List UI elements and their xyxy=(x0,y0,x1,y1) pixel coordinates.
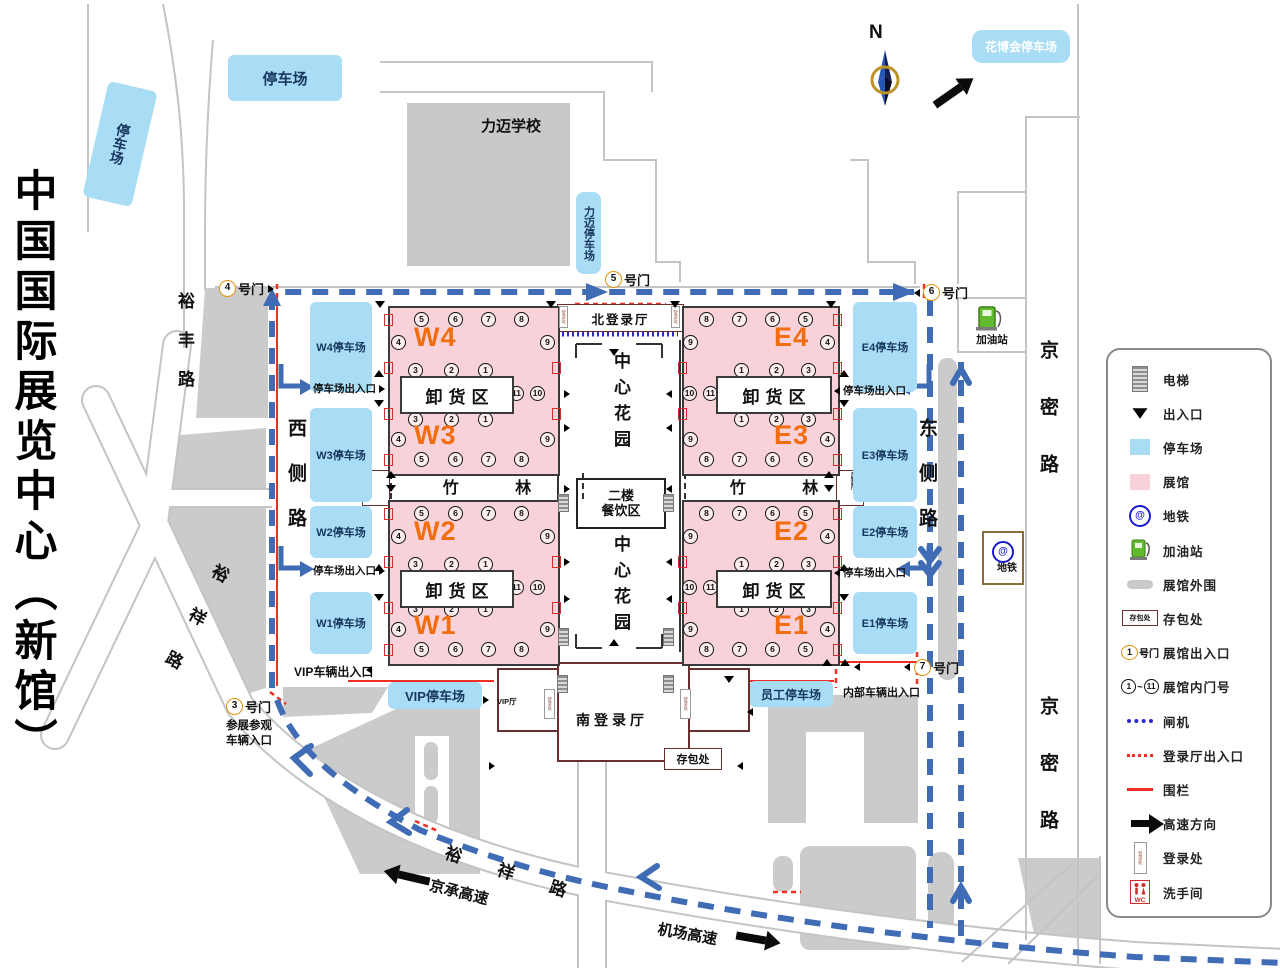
wc-icon xyxy=(384,314,393,326)
legend-item-perimeter: 展馆外围 xyxy=(1117,569,1263,599)
metro-icon: @ xyxy=(992,541,1014,563)
entrance-triangle-icon xyxy=(824,471,834,478)
direction-triangle-icon xyxy=(914,289,920,297)
svg-text:WC: WC xyxy=(1135,897,1146,904)
parking-E3停车场: E3停车场 xyxy=(853,408,917,502)
door-number: 10 xyxy=(682,386,697,401)
south-lobby-label: 南登录厅 xyxy=(576,710,648,730)
parking-entrance-text: 停车场出入口 xyxy=(843,565,906,580)
direction-triangle-icon xyxy=(564,595,570,603)
legend-item-turnstile: 闸机 xyxy=(1117,706,1263,736)
door-number: 4 xyxy=(391,622,406,637)
door-number: 7 xyxy=(481,506,496,521)
door-number: 7 xyxy=(481,642,496,657)
entrance-triangle-icon xyxy=(375,301,385,308)
entrance-triangle-icon xyxy=(374,370,384,377)
legend-item-metro: @地铁 xyxy=(1117,501,1263,531)
parking-limai: 力迈停车场 xyxy=(576,192,601,274)
parking-E2停车场: E2停车场 xyxy=(853,506,917,558)
legend-item-fence: 围栏 xyxy=(1117,774,1263,804)
bag-storage-label: 存包处 xyxy=(664,748,722,770)
direction-triangle-icon xyxy=(666,424,672,432)
wc-icon xyxy=(833,408,842,420)
gate-suffix: 号门 xyxy=(1139,645,1159,660)
parking-top: 停车场 xyxy=(228,55,342,101)
entrance-triangle-icon xyxy=(609,349,619,356)
door-number: 9 xyxy=(683,335,698,350)
legend-item-elevator: 电梯 xyxy=(1117,364,1263,394)
gate-number: 3 xyxy=(226,698,243,715)
registration-desk-icon: 登录处 xyxy=(544,689,555,719)
entrance-triangle-icon xyxy=(386,485,396,492)
entrance-triangle-icon xyxy=(839,594,849,601)
registration-desk-icon: 登录处 xyxy=(559,306,568,328)
parking-entrance-text: 停车场出入口 xyxy=(843,383,906,398)
door-number: 7 xyxy=(481,312,496,327)
entrance-triangle-icon xyxy=(840,659,850,666)
legend-item-label: 电梯 xyxy=(1163,370,1190,389)
door-number: 5 xyxy=(414,452,429,467)
gate-number: 6 xyxy=(923,284,940,301)
door-number: 4 xyxy=(391,529,406,544)
wc-icon xyxy=(833,508,842,520)
door-number: 8 xyxy=(699,312,714,327)
elevator-icon xyxy=(558,628,569,646)
parking-W2停车场: W2停车场 xyxy=(310,506,372,558)
door-number: 6 xyxy=(765,452,780,467)
unloading-dock: 卸货区 xyxy=(400,570,514,608)
north-lobby: 北登录厅 xyxy=(557,304,684,332)
door-number: 7 xyxy=(732,312,747,327)
legend-item-label: 停车场 xyxy=(1163,438,1204,457)
wc-icon xyxy=(384,602,393,614)
road-jingmi-top: 京密路 xyxy=(1034,340,1061,511)
entrance-triangle-icon xyxy=(839,370,849,377)
parking-W1停车场: W1停车场 xyxy=(310,592,372,654)
hall-label-E3: E3 xyxy=(774,422,809,449)
door-number: 8 xyxy=(699,452,714,467)
legend-item-label: 围栏 xyxy=(1163,780,1190,799)
wc-icon xyxy=(384,408,393,420)
parking-E4停车场: E4停车场 xyxy=(853,302,917,392)
metro-station: @ 地铁 xyxy=(982,531,1024,585)
gate-suffix: 号门 xyxy=(624,270,650,289)
direction-triangle-icon xyxy=(489,762,495,770)
wc-icon xyxy=(833,602,842,614)
legend-item-triangle: 出入口 xyxy=(1117,398,1263,428)
gate-suffix: 号门 xyxy=(245,697,271,716)
turnstile-line-icon xyxy=(1127,719,1153,723)
entrance-triangle-icon xyxy=(824,485,834,492)
parking-staff: 员工停车场 xyxy=(749,681,833,707)
direction-triangle-icon xyxy=(483,696,489,704)
wc-icon xyxy=(552,408,561,420)
legend-item-bag: 存包处存包处 xyxy=(1117,603,1263,633)
direction-triangle-icon xyxy=(564,424,570,432)
legend-item-label: 展馆 xyxy=(1163,472,1190,491)
direction-triangle-icon xyxy=(268,285,274,293)
door-number: 8 xyxy=(514,506,529,521)
entrance-triangle-icon xyxy=(386,471,396,478)
door-number: 10 xyxy=(530,386,545,401)
door-number: 4 xyxy=(820,529,835,544)
lobby-door-line-icon xyxy=(1127,754,1153,757)
gate-7-label: 7号门 xyxy=(914,658,959,677)
door-number: 9 xyxy=(683,622,698,637)
registration-desk-text: 登录处 xyxy=(561,310,566,324)
bamboo-strip-east: 竹 林 xyxy=(684,473,864,499)
unloading-dock: 卸货区 xyxy=(716,570,832,608)
wc-icon xyxy=(678,602,687,614)
legend-item-label: 高速方向 xyxy=(1163,814,1217,833)
wc-icon xyxy=(384,556,393,568)
parking-swatch xyxy=(1130,439,1150,455)
legend-item-label: 展馆出入口 xyxy=(1163,643,1231,662)
unloading-dock: 卸货区 xyxy=(716,376,832,414)
entrance-triangle-icon xyxy=(670,301,680,308)
wc-icon xyxy=(552,362,561,374)
perimeter-swatch xyxy=(1127,580,1153,589)
fence-line-icon xyxy=(1127,788,1153,791)
parking-far-left-label: 停车场 xyxy=(106,121,135,166)
parking-E1停车场: E1停车场 xyxy=(853,592,917,654)
elevator-icon xyxy=(1132,366,1148,392)
wc-icon xyxy=(384,644,393,656)
wc-icon xyxy=(833,454,842,466)
wc-icon xyxy=(384,362,393,374)
direction-triangle-icon xyxy=(747,708,753,716)
door-number: 10 xyxy=(682,580,697,595)
door-number: 7 xyxy=(732,642,747,657)
venue-map: 中国国际展览中心（新馆） N 停车场 停车场 力迈学校 力迈停车场 花博会停车场… xyxy=(0,0,1280,968)
direction-triangle-icon xyxy=(666,558,672,566)
wc-icon: WC xyxy=(1130,880,1150,904)
central-garden-north-label: 中心花园 xyxy=(608,352,633,456)
south-lobby-east-wing xyxy=(686,668,750,732)
door-number: 9 xyxy=(540,432,555,447)
entrance-triangle-icon xyxy=(822,659,832,666)
gate-5-label: 5号门 xyxy=(605,270,650,289)
wc-icon xyxy=(552,602,561,614)
internal-vehicle-entrance-label: 内部车辆出入口 xyxy=(843,684,920,700)
legend-item-label: 登录处 xyxy=(1163,848,1204,867)
elevator-icon xyxy=(663,494,674,512)
door-number: 7 xyxy=(732,452,747,467)
legend-item-regdesk: 登录处登录处 xyxy=(1117,843,1263,873)
direction-triangle-icon xyxy=(737,762,743,770)
door-number: 1 xyxy=(1121,679,1136,694)
dining-line1: 二楼 xyxy=(608,489,634,504)
direction-triangle-icon xyxy=(564,558,570,566)
gate-number: 5 xyxy=(605,271,622,288)
parking-vip: VIP停车场 xyxy=(388,682,482,709)
hall-label-W1: W1 xyxy=(414,612,457,639)
road-jingmi-bottom: 京密路 xyxy=(1034,696,1061,867)
direction-triangle-icon xyxy=(379,385,385,393)
legend-panel: 电梯出入口停车场展馆@地铁加油站展馆外围存包处存包处1号门展馆出入口1~11展馆… xyxy=(1106,348,1272,918)
door-number: 1 xyxy=(734,412,749,427)
bag-storage-icon: 存包处 xyxy=(1122,610,1158,626)
legend-item-label: 加油站 xyxy=(1163,541,1204,560)
gate-number: 4 xyxy=(219,280,236,297)
gas-station-label: 加油站 xyxy=(961,332,1023,347)
road-xice: 西侧路 xyxy=(282,418,309,553)
door-number: 9 xyxy=(540,335,555,350)
hall-swatch xyxy=(1130,474,1150,490)
entrance-triangle-icon xyxy=(374,400,384,407)
door-number: 9 xyxy=(540,622,555,637)
road-dongce: 东侧路 xyxy=(913,418,940,553)
legend-item-label: 地铁 xyxy=(1163,506,1190,525)
parking-limai-label: 力迈停车场 xyxy=(581,206,597,261)
legend-item-gas: 加油站 xyxy=(1117,535,1263,565)
parking-W3停车场: W3停车场 xyxy=(310,408,372,502)
parking-entrance-text: 停车场出入口 xyxy=(313,563,376,578)
gate-4-label: 4号门 xyxy=(219,279,264,298)
elevator-icon xyxy=(558,494,569,512)
door-number: 4 xyxy=(820,622,835,637)
door-number: 8 xyxy=(514,312,529,327)
hall-label-E2: E2 xyxy=(774,518,809,545)
gate-number: 1 xyxy=(1121,645,1138,660)
door-number: 9 xyxy=(540,529,555,544)
door-number: 7 xyxy=(732,506,747,521)
door-number: 4 xyxy=(391,432,406,447)
limai-school-label: 力迈学校 xyxy=(455,115,567,136)
wc-icon xyxy=(678,408,687,420)
parking-entrance-label: 停车场出入口 xyxy=(313,563,385,578)
door-range-icon: 1~11 xyxy=(1121,679,1158,694)
gate-6-label: 6号门 xyxy=(923,283,968,302)
registration-desk-text: 登录处 xyxy=(683,697,688,711)
gate-suffix: 号门 xyxy=(238,279,264,298)
door-number: 9 xyxy=(683,529,698,544)
registration-desk-text: 登录处 xyxy=(547,697,552,711)
entrance-triangle-icon xyxy=(1133,408,1148,419)
hall-label-W3: W3 xyxy=(414,422,457,449)
page-title: 中国国际展览中心（新馆） xyxy=(10,168,53,768)
parking-W4停车场: W4停车场 xyxy=(310,302,372,392)
metro-label: 地铁 xyxy=(997,564,1009,575)
wc-icon xyxy=(678,556,687,568)
legend-item-highway: 高速方向 xyxy=(1117,809,1263,839)
direction-triangle-icon xyxy=(366,666,372,674)
road-yufeng: 裕丰路 xyxy=(172,292,197,409)
door-number: 6 xyxy=(448,452,463,467)
gate-suffix: 号门 xyxy=(942,283,968,302)
legend-item-label: 展馆内门号 xyxy=(1163,677,1231,696)
door-number: 6 xyxy=(448,642,463,657)
direction-triangle-icon xyxy=(904,663,910,671)
door-number: 4 xyxy=(820,432,835,447)
legend-item-hall: 展馆 xyxy=(1117,467,1263,497)
parking-entrance-label: 停车场出入口 xyxy=(834,383,906,398)
door-number: 1 xyxy=(478,412,493,427)
registration-desk-text: 登录处 xyxy=(1138,851,1143,865)
range-separator: ~ xyxy=(1137,682,1142,692)
elevator-icon xyxy=(663,628,674,646)
legend-item-label: 展馆外围 xyxy=(1163,575,1217,594)
wc-icon xyxy=(833,644,842,656)
parking-entrance-label: 停车场出入口 xyxy=(834,565,906,580)
legend-item-label: 登录厅出入口 xyxy=(1163,746,1244,765)
legend-item-range: 1~11展馆内门号 xyxy=(1117,672,1263,702)
entrance-triangle-icon xyxy=(374,594,384,601)
door-number: 7 xyxy=(481,452,496,467)
hall-label-W2: W2 xyxy=(414,518,457,545)
legend-item-parking: 停车场 xyxy=(1117,432,1263,462)
door-number: 8 xyxy=(699,506,714,521)
parking-entrance-text: 停车场出入口 xyxy=(313,381,376,396)
gate-number: 7 xyxy=(914,659,931,676)
gate-note-line: 参展参观 xyxy=(226,717,272,733)
door-number: 8 xyxy=(514,642,529,657)
door-number: 8 xyxy=(699,642,714,657)
compass-icon xyxy=(872,50,898,106)
entrance-triangle-icon xyxy=(546,301,556,308)
direction-triangle-icon xyxy=(666,485,672,493)
door-number: 11 xyxy=(1144,679,1159,694)
door-number: 4 xyxy=(391,335,406,350)
wc-icon xyxy=(384,454,393,466)
door-number: 5 xyxy=(798,452,813,467)
entrance-triangle-icon xyxy=(839,400,849,407)
dining-area: 二楼 餐饮区 xyxy=(576,478,666,529)
gate-note-line: 车辆入口 xyxy=(226,732,272,748)
vip-room-label: VIP厅 xyxy=(497,696,517,707)
gate-3-label: 3号门 xyxy=(226,697,271,716)
gate-suffix: 号门 xyxy=(933,658,959,677)
wc-icon xyxy=(678,362,687,374)
unloading-dock: 卸货区 xyxy=(400,376,514,414)
direction-triangle-icon xyxy=(834,569,840,577)
legend-item-label: 出入口 xyxy=(1163,404,1204,423)
direction-triangle-icon xyxy=(834,387,840,395)
direction-triangle-icon xyxy=(666,595,672,603)
elevator-icon xyxy=(557,675,568,693)
door-number: 5 xyxy=(414,642,429,657)
hall-label-E1: E1 xyxy=(774,612,809,639)
registration-desk-icon: 登录处 xyxy=(671,306,680,328)
legend-item-label: 洗手间 xyxy=(1163,883,1204,902)
central-garden-south-label: 中心花园 xyxy=(608,535,633,639)
wc-icon xyxy=(833,314,842,326)
entrance-triangle-icon xyxy=(724,676,734,683)
legend-item-label: 存包处 xyxy=(1163,609,1204,628)
registration-desk-icon: 登录处 xyxy=(1134,842,1147,874)
gate-icon: 1号门 xyxy=(1121,645,1159,660)
registration-desk-icon: 登录处 xyxy=(680,689,691,719)
door-number: 8 xyxy=(514,452,529,467)
direction-triangle-icon xyxy=(666,390,672,398)
door-number: 4 xyxy=(820,335,835,350)
elevator-icon xyxy=(663,675,674,693)
vip-vehicle-entrance-label: VIP车辆出入口 xyxy=(294,663,373,680)
bamboo-strip-west: 竹 林 xyxy=(390,473,584,499)
door-number: 10 xyxy=(530,580,545,595)
parking-huabohui: 花博会停车场 xyxy=(972,30,1070,63)
parking-entrance-label: 停车场出入口 xyxy=(313,381,385,396)
door-number: 6 xyxy=(765,642,780,657)
gas-pump-icon xyxy=(1129,538,1151,562)
metro-icon: @ xyxy=(1129,505,1151,527)
entrance-triangle-icon xyxy=(826,301,836,308)
legend-item-label: 闸机 xyxy=(1163,712,1190,731)
direction-triangle-icon xyxy=(379,567,385,575)
direction-triangle-icon xyxy=(564,390,570,398)
compass-north-label: N xyxy=(869,22,883,44)
entrance-triangle-icon xyxy=(609,639,619,646)
legend-item-gate: 1号门展馆出入口 xyxy=(1117,638,1263,668)
wc-icon xyxy=(552,556,561,568)
door-number: 5 xyxy=(798,642,813,657)
legend-item-wc: WC洗手间 xyxy=(1117,877,1263,907)
hall-label-E4: E4 xyxy=(774,324,809,351)
hall-label-W4: W4 xyxy=(414,324,457,351)
legend-item-lobby-door: 登录厅出入口 xyxy=(1117,740,1263,770)
door-number: 9 xyxy=(683,432,698,447)
registration-desk-text: 登录处 xyxy=(673,310,678,324)
direction-triangle-icon xyxy=(564,485,570,493)
highway-arrow-icon xyxy=(1131,820,1149,827)
wc-icon xyxy=(384,508,393,520)
direction-triangle-icon xyxy=(854,663,860,671)
dining-line2: 餐饮区 xyxy=(601,504,640,519)
